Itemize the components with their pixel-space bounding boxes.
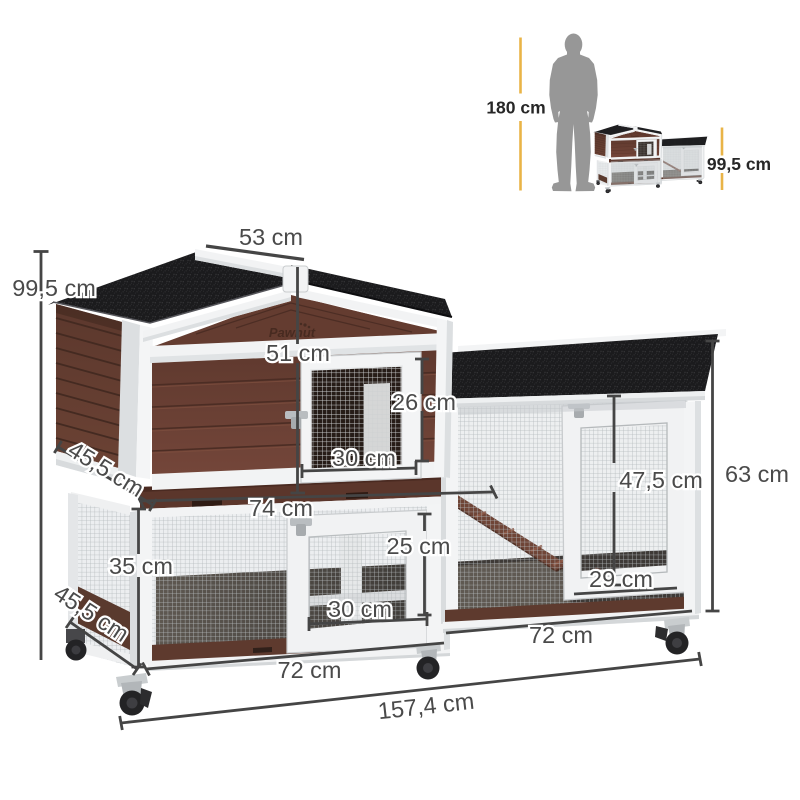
- svg-text:63 cm: 63 cm: [725, 461, 789, 487]
- svg-text:25 cm: 25 cm: [387, 533, 451, 559]
- svg-text:74 cm: 74 cm: [249, 495, 313, 521]
- svg-text:26 cm: 26 cm: [392, 389, 456, 415]
- svg-text:47,5 cm: 47,5 cm: [619, 467, 703, 493]
- svg-text:72 cm: 72 cm: [529, 622, 593, 648]
- svg-text:35 cm: 35 cm: [109, 553, 173, 579]
- svg-text:99,5 cm: 99,5 cm: [707, 154, 771, 174]
- svg-text:30 cm: 30 cm: [332, 445, 396, 471]
- svg-text:51 cm: 51 cm: [266, 340, 330, 366]
- svg-text:30 cm: 30 cm: [328, 596, 392, 622]
- svg-text:53 cm: 53 cm: [239, 224, 303, 250]
- svg-text:99,5 cm: 99,5 cm: [12, 275, 96, 301]
- svg-text:72 cm: 72 cm: [278, 657, 342, 683]
- svg-text:29 cm: 29 cm: [589, 566, 653, 592]
- svg-text:180 cm: 180 cm: [486, 98, 545, 118]
